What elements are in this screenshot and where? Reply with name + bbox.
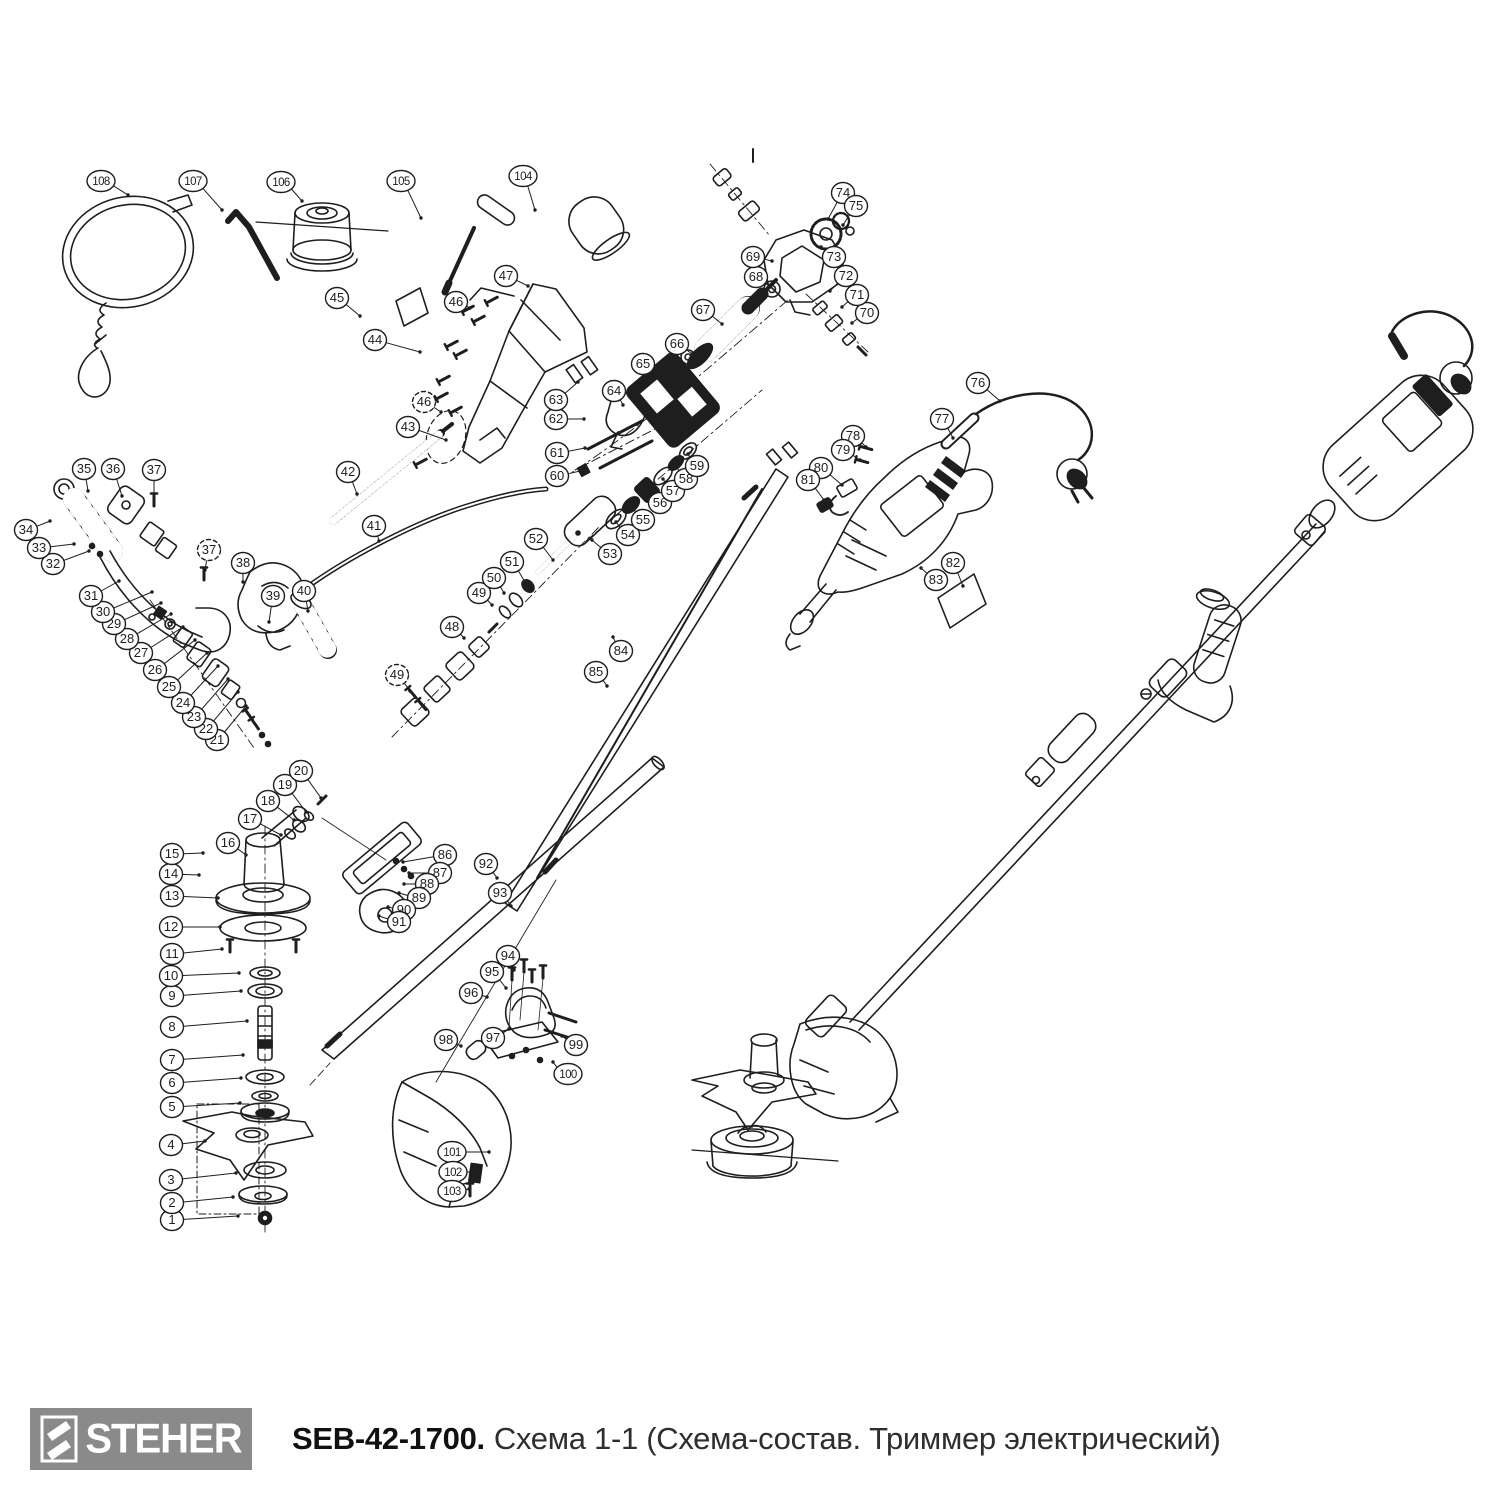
svg-text:84: 84 (614, 643, 628, 658)
svg-text:69: 69 (746, 249, 760, 264)
callout-7: 7 (161, 1050, 245, 1071)
callout-64: 64 (603, 381, 626, 407)
callout-35: 35 (73, 459, 96, 493)
callout-61: 61 (546, 443, 587, 464)
armature-art (682, 280, 780, 374)
svg-text:95: 95 (485, 964, 499, 979)
svg-text:34: 34 (19, 522, 33, 537)
callout-52: 52 (525, 529, 555, 562)
svg-text:76: 76 (971, 375, 985, 390)
svg-text:38: 38 (236, 555, 250, 570)
svg-text:89: 89 (412, 890, 426, 905)
svg-text:15: 15 (165, 846, 179, 861)
svg-text:36: 36 (106, 461, 120, 476)
svg-text:54: 54 (621, 527, 635, 542)
callout-11: 11 (161, 944, 224, 965)
callout-77: 77 (931, 409, 955, 440)
svg-text:35: 35 (77, 461, 91, 476)
callout-85: 85 (585, 662, 609, 688)
callout-layer: 1234567891011121314151617181920212223242… (15, 166, 1002, 1231)
svg-text:52: 52 (529, 531, 543, 546)
callout-62: 62 (545, 409, 586, 430)
svg-text:51: 51 (505, 554, 519, 569)
svg-text:20: 20 (294, 763, 308, 778)
callout-41: 41 (363, 516, 386, 543)
callout-107: 107 (179, 171, 224, 212)
callout-100: 100 (551, 1060, 582, 1084)
callout-44: 44 (364, 330, 422, 354)
svg-text:12: 12 (164, 919, 178, 934)
svg-text:86: 86 (438, 847, 452, 862)
svg-text:8: 8 (168, 1019, 175, 1034)
svg-text:81: 81 (801, 472, 815, 487)
svg-text:44: 44 (368, 332, 382, 347)
scheme-title: Схема 1-1 (Схема-состав. Триммер электри… (494, 1421, 1221, 1456)
svg-text:5: 5 (168, 1099, 175, 1114)
callout-43: 43 (397, 417, 448, 442)
svg-text:66: 66 (670, 336, 684, 351)
svg-text:16: 16 (221, 835, 235, 850)
callout-14: 14 (160, 864, 201, 885)
svg-text:25: 25 (162, 679, 176, 694)
svg-text:6: 6 (168, 1075, 175, 1090)
gear-head-stack-art (183, 796, 326, 1232)
svg-text:102: 102 (444, 1167, 462, 1179)
svg-text:49: 49 (472, 585, 486, 600)
svg-text:64: 64 (607, 383, 621, 398)
svg-text:39: 39 (266, 588, 280, 603)
svg-text:7: 7 (168, 1052, 175, 1067)
callout-106: 106 (267, 172, 304, 203)
callout-92: 92 (475, 854, 499, 880)
svg-text:43: 43 (401, 419, 415, 434)
callout-31: 31 (80, 579, 121, 606)
callout-39: 39 (262, 586, 285, 624)
callout-69: 69 (742, 247, 774, 268)
svg-text:59: 59 (690, 458, 704, 473)
callout-66: 66 (666, 334, 694, 356)
svg-text:79: 79 (836, 442, 850, 457)
callout-3: 3 (160, 1170, 238, 1191)
callout-84: 84 (610, 635, 633, 661)
callout-48: 48 (441, 617, 466, 640)
svg-text:42: 42 (341, 464, 355, 479)
svg-text:31: 31 (84, 588, 98, 603)
svg-text:61: 61 (550, 445, 564, 460)
callout-5: 5 (161, 1097, 242, 1118)
callout-9: 9 (161, 986, 243, 1007)
callout-102: 102 (439, 1162, 473, 1183)
callout-36: 36 (102, 459, 125, 498)
svg-text:93: 93 (493, 885, 507, 900)
shoulder-strap-art (51, 183, 206, 397)
svg-text:65: 65 (636, 356, 650, 371)
spool-head-art (256, 203, 388, 271)
callout-15: 15 (161, 844, 205, 865)
model-number: SEB-42-1700. (292, 1421, 485, 1456)
footer: STEHER SEB-42-1700.Схема 1-1 (Схема-сост… (30, 1408, 1221, 1470)
svg-text:33: 33 (32, 540, 46, 555)
callout-83: 83 (919, 566, 947, 590)
svg-text:45: 45 (330, 290, 344, 305)
assembled-trimmer-art (692, 311, 1485, 1178)
svg-text:11: 11 (165, 946, 179, 961)
callout-16: 16 (217, 833, 248, 857)
svg-text:70: 70 (860, 305, 874, 320)
callout-12: 12 (160, 917, 222, 938)
svg-text:106: 106 (272, 177, 290, 189)
svg-text:105: 105 (392, 176, 410, 188)
svg-text:73: 73 (827, 249, 841, 264)
svg-text:68: 68 (749, 269, 763, 284)
svg-text:17: 17 (243, 811, 257, 826)
svg-text:75: 75 (849, 198, 863, 213)
svg-text:55: 55 (636, 512, 650, 527)
svg-text:53: 53 (603, 546, 617, 561)
svg-text:71: 71 (850, 287, 864, 302)
callout-97: 97 (482, 1027, 511, 1048)
callout-20: 20 (290, 761, 323, 800)
callout-108: 108 (87, 171, 130, 197)
steher-logo-mark (40, 1415, 78, 1463)
svg-text:37: 37 (147, 462, 161, 477)
svg-text:48: 48 (445, 619, 459, 634)
svg-text:60: 60 (550, 468, 564, 483)
svg-text:46: 46 (449, 294, 463, 309)
callout-76: 76 (967, 373, 1002, 403)
svg-text:91: 91 (392, 914, 406, 929)
svg-text:67: 67 (696, 302, 710, 317)
callout-37: 37 (143, 460, 166, 496)
svg-text:37: 37 (202, 542, 216, 557)
svg-text:26: 26 (148, 662, 162, 677)
svg-text:101: 101 (443, 1147, 461, 1159)
svg-text:3: 3 (167, 1172, 174, 1187)
svg-text:77: 77 (935, 411, 949, 426)
svg-text:18: 18 (261, 793, 275, 808)
callout-13: 13 (161, 886, 220, 907)
callout-59: 59 (686, 452, 709, 476)
callout-63: 63 (545, 380, 580, 410)
svg-text:10: 10 (164, 968, 178, 983)
svg-text:50: 50 (487, 570, 501, 585)
svg-text:108: 108 (92, 176, 110, 188)
callout-47: 47 (495, 266, 530, 288)
diagram-stage: 1234567891011121314151617181920212223242… (0, 0, 1502, 1365)
callout-34: 34 (15, 519, 52, 540)
svg-text:28: 28 (120, 631, 134, 646)
svg-text:96: 96 (464, 985, 478, 1000)
callout-99: 99 (560, 1034, 587, 1055)
svg-text:30: 30 (96, 604, 110, 619)
callout-45: 45 (326, 288, 362, 318)
callout-105: 105 (387, 171, 423, 220)
callout-86: 86 (401, 845, 456, 866)
svg-text:19: 19 (278, 777, 292, 792)
callout-38: 38 (232, 553, 255, 584)
svg-text:63: 63 (549, 392, 563, 407)
cap-art (560, 188, 634, 265)
callout-49: 49 (386, 665, 412, 693)
exploded-parts-diagram: 1234567891011121314151617181920212223242… (0, 0, 1502, 1365)
callout-93: 93 (489, 883, 513, 908)
svg-text:40: 40 (297, 583, 311, 598)
svg-text:103: 103 (443, 1186, 461, 1198)
callout-67: 67 (692, 300, 724, 326)
callout-8: 8 (161, 1017, 249, 1038)
coupler-chain-art (392, 390, 762, 737)
svg-text:27: 27 (134, 645, 148, 660)
svg-text:82: 82 (946, 555, 960, 570)
main-housing-art (396, 284, 587, 469)
svg-text:24: 24 (176, 695, 190, 710)
svg-text:97: 97 (486, 1030, 500, 1045)
callout-104: 104 (509, 166, 537, 212)
callout-101: 101 (438, 1142, 491, 1163)
svg-text:83: 83 (929, 572, 943, 587)
svg-text:92: 92 (479, 856, 493, 871)
callout-6: 6 (161, 1073, 243, 1094)
callout-2: 2 (161, 1193, 235, 1214)
svg-text:99: 99 (569, 1037, 583, 1052)
steher-logo: STEHER (30, 1408, 252, 1470)
svg-text:13: 13 (165, 888, 179, 903)
callout-10: 10 (160, 966, 241, 987)
callout-42: 42 (337, 462, 360, 496)
svg-text:85: 85 (589, 664, 603, 679)
callout-68: 68 (745, 267, 772, 289)
svg-text:47: 47 (499, 268, 513, 283)
callout-53: 53 (590, 538, 621, 564)
motor-housing-half-art (786, 394, 1092, 650)
svg-text:107: 107 (184, 176, 202, 188)
svg-text:14: 14 (164, 866, 178, 881)
svg-text:46: 46 (417, 394, 431, 409)
callout-27: 27 (130, 625, 185, 663)
brand-name: STEHER (85, 1415, 241, 1462)
svg-text:41: 41 (367, 518, 381, 533)
svg-text:104: 104 (514, 171, 533, 183)
svg-text:98: 98 (439, 1032, 453, 1047)
svg-text:2: 2 (168, 1195, 175, 1210)
svg-text:49: 49 (390, 667, 404, 682)
svg-text:94: 94 (501, 948, 515, 963)
callout-98: 98 (435, 1030, 463, 1051)
diagram-caption: SEB-42-1700.Схема 1-1 (Схема-состав. Три… (292, 1421, 1221, 1457)
svg-text:32: 32 (46, 556, 60, 571)
hex-key-art (228, 212, 277, 278)
svg-text:72: 72 (839, 268, 853, 283)
svg-text:62: 62 (549, 411, 563, 426)
svg-text:4: 4 (167, 1137, 174, 1152)
svg-text:1: 1 (168, 1212, 175, 1227)
svg-text:9: 9 (168, 988, 175, 1003)
svg-text:100: 100 (559, 1069, 577, 1081)
callout-60: 60 (546, 466, 582, 487)
